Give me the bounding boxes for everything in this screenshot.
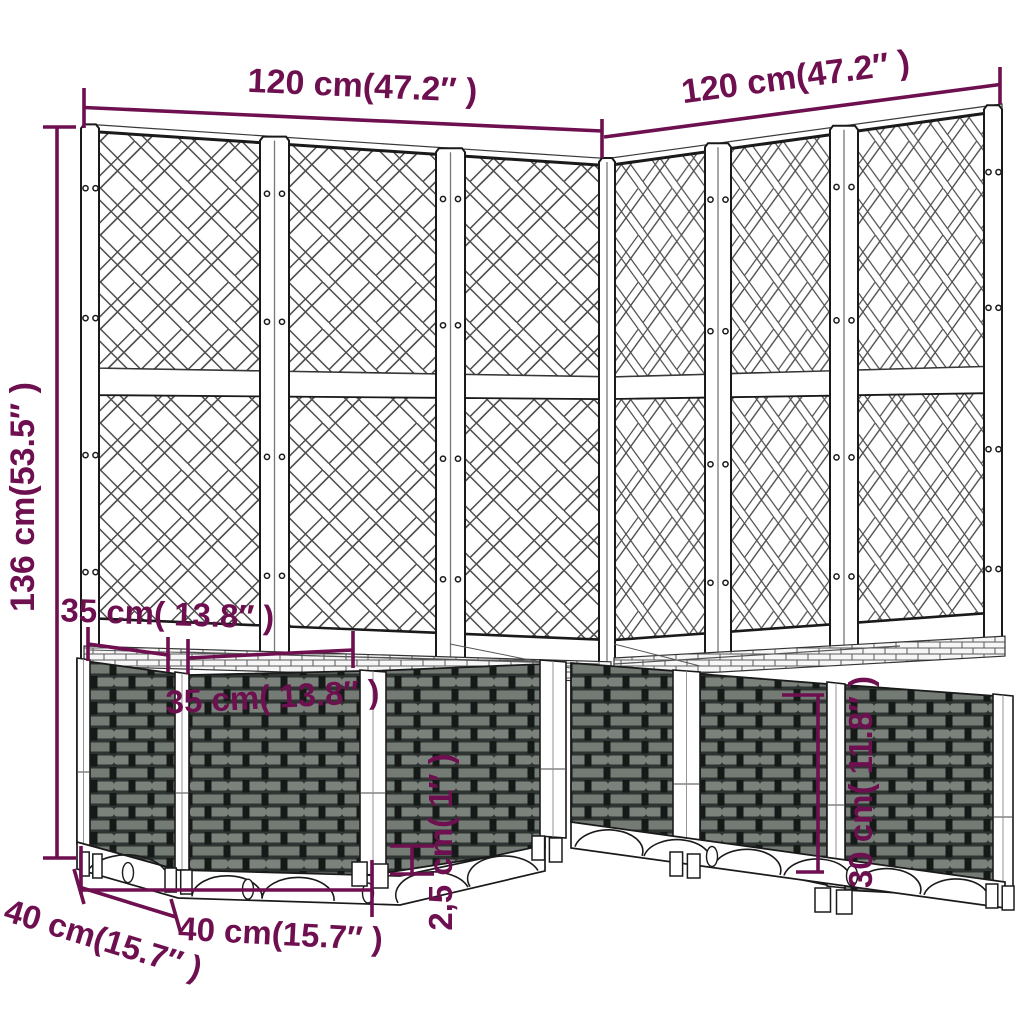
- svg-text:2,5 cm( 1″ ): 2,5 cm( 1″ ): [422, 753, 459, 930]
- svg-text:35 cm( 13.8″ ): 35 cm( 13.8″ ): [60, 591, 275, 635]
- svg-text:30 cm( 11.8″ ): 30 cm( 11.8″ ): [842, 676, 879, 888]
- svg-text:136 cm(53.5″ ): 136 cm(53.5″ ): [4, 382, 42, 612]
